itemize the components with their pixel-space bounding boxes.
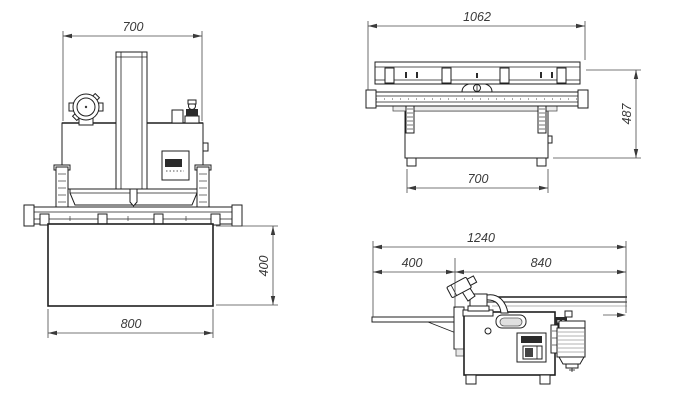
dim-front-base-width: 800: [48, 309, 213, 338]
rear-fence: [375, 62, 580, 84]
side-knob-circle: [485, 328, 491, 334]
fence-block: [500, 68, 509, 83]
dim-label-front-400: 400: [257, 256, 271, 277]
rear-leg-right: [538, 105, 546, 133]
side-handle-slot: [496, 315, 526, 328]
side-control-panel: [517, 333, 546, 362]
rear-leg-left: [406, 105, 414, 133]
front-column: [116, 52, 147, 206]
front-view: 700 800 400: [24, 20, 278, 338]
front-valve: [185, 100, 199, 123]
drawing-svg: 700 800 400: [0, 0, 680, 407]
rear-rail: [366, 90, 588, 108]
front-rail: [24, 205, 242, 226]
front-right-bracket: [195, 165, 211, 207]
front-body-side-tab: [203, 143, 208, 151]
technical-drawing-page: 700 800 400: [0, 0, 680, 407]
dim-label-rear-487: 487: [620, 103, 634, 125]
dim-label-rear-1062: 1062: [463, 10, 491, 24]
front-top-box: [172, 110, 183, 123]
side-foot-left: [466, 375, 476, 384]
dim-label-side-840: 840: [531, 256, 552, 270]
side-left-rail: [372, 317, 458, 333]
front-left-bracket: [54, 165, 70, 207]
front-control-panel: [162, 151, 189, 180]
dim-label-front-700: 700: [123, 20, 144, 34]
front-handwheel: [69, 94, 103, 125]
rear-view: 1062 487 700: [366, 10, 641, 193]
rear-body-tab: [548, 136, 552, 143]
side-foot-right: [540, 375, 550, 384]
dim-front-base-height: 400: [216, 226, 278, 305]
fence-block: [442, 68, 451, 83]
front-base: [48, 224, 213, 306]
rear-foot-right: [537, 158, 546, 166]
table-edge-arrow: [617, 313, 626, 318]
fence-block: [385, 68, 394, 83]
side-motor: [551, 311, 585, 372]
rear-foot-left: [407, 158, 416, 166]
dim-label-front-800: 800: [121, 317, 142, 331]
side-view: 1240 400 840: [372, 231, 627, 384]
rear-body: [405, 111, 548, 158]
fence-block: [557, 68, 566, 83]
dim-label-rear-700: 700: [468, 172, 489, 186]
dim-rear-body-width: 700: [407, 169, 548, 193]
dim-label-side-400: 400: [402, 256, 423, 270]
dim-label-side-1240: 1240: [467, 231, 495, 245]
